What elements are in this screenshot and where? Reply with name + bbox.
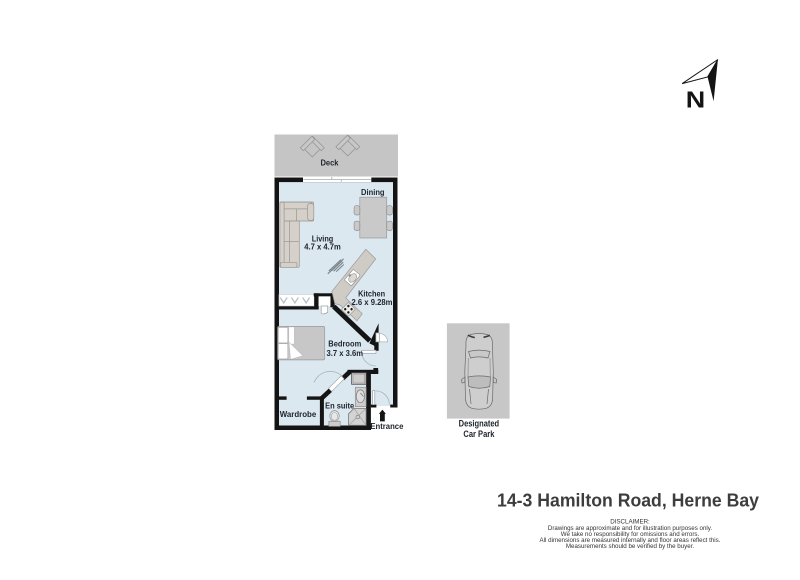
svg-text:Deck: Deck	[321, 158, 339, 168]
svg-text:Designated: Designated	[459, 419, 500, 429]
svg-text:Dining: Dining	[361, 187, 385, 197]
svg-text:Car Park: Car Park	[463, 429, 494, 439]
svg-text:2.6 x 9.28m: 2.6 x 9.28m	[352, 297, 393, 307]
svg-text:N: N	[686, 87, 706, 113]
svg-text:3.7 x 3.6m: 3.7 x 3.6m	[327, 348, 364, 358]
svg-text:En suite: En suite	[325, 400, 354, 410]
svg-text:Measurements should be verifie: Measurements should be verified by the b…	[566, 543, 695, 550]
svg-text:4.7 x 4.7m: 4.7 x 4.7m	[304, 241, 341, 251]
svg-text:14-3 Hamilton Road, Herne Bay: 14-3 Hamilton Road, Herne Bay	[497, 490, 760, 511]
svg-text:Entrance: Entrance	[370, 421, 403, 431]
svg-text:Bedroom: Bedroom	[328, 338, 361, 348]
svg-text:Wardrobe: Wardrobe	[280, 409, 317, 419]
